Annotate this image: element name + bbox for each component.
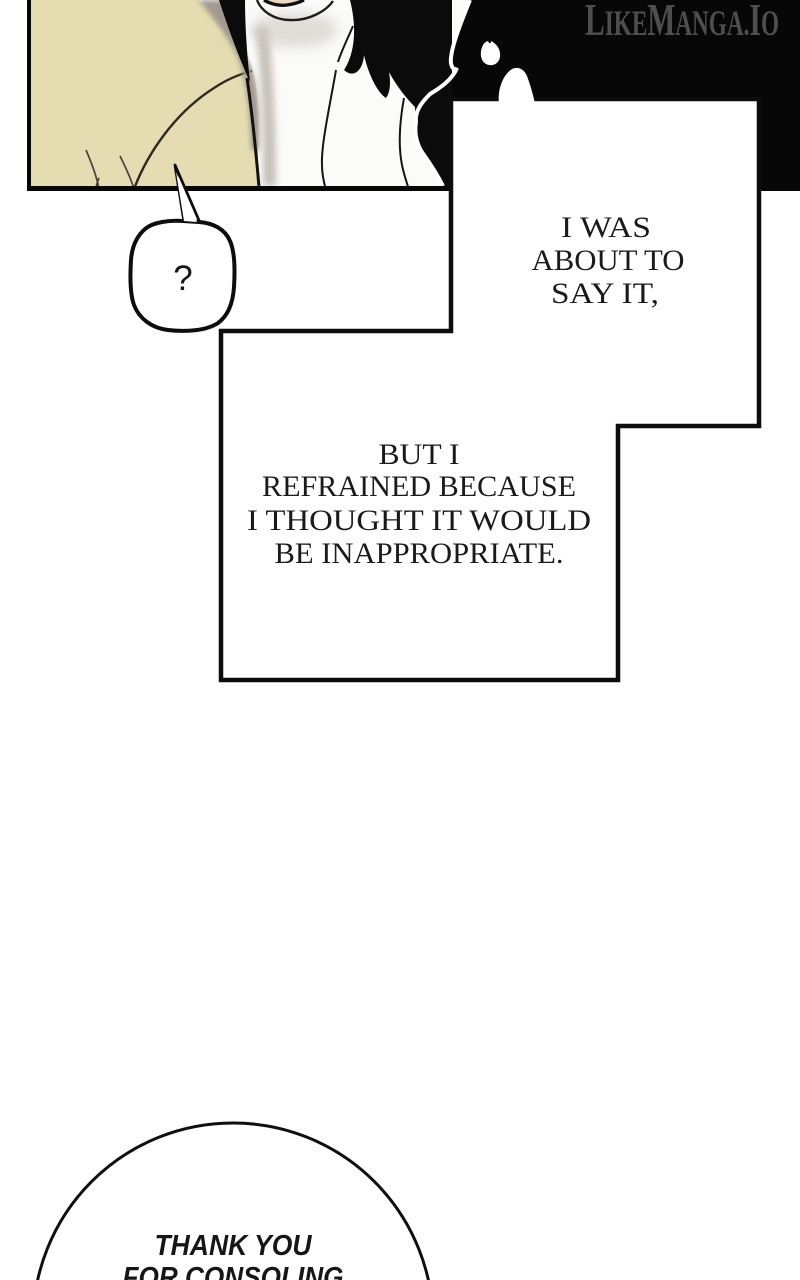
svg-text:SAY IT,: SAY IT, xyxy=(551,277,659,310)
svg-text:LIKEMANGA.IO: LIKEMANGA.IO xyxy=(585,0,779,45)
svg-text:FOR CONSOLING: FOR CONSOLING xyxy=(123,1262,344,1280)
svg-text:BE INAPPROPRIATE.: BE INAPPROPRIATE. xyxy=(275,537,564,570)
svg-text:I WAS: I WAS xyxy=(561,211,651,244)
svg-text:I THOUGHT IT WOULD: I THOUGHT IT WOULD xyxy=(247,504,591,537)
svg-text:REFRAINED BECAUSE: REFRAINED BECAUSE xyxy=(262,470,576,503)
svg-text:BUT I: BUT I xyxy=(379,438,460,471)
svg-text:ABOUT TO: ABOUT TO xyxy=(532,244,685,277)
svg-text:THANK YOU: THANK YOU xyxy=(155,1230,313,1262)
svg-text:?: ? xyxy=(173,259,192,298)
